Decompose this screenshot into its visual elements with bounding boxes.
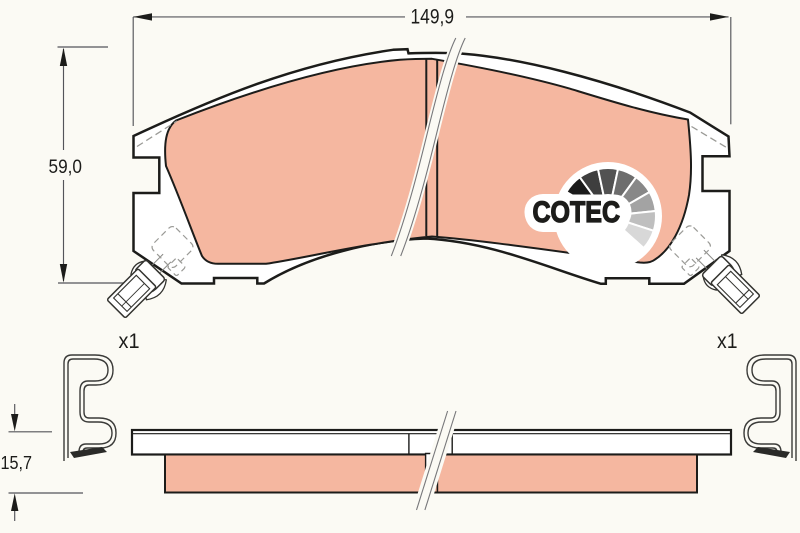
svg-text:x1: x1 <box>119 330 140 353</box>
svg-text:COTEC: COTEC <box>533 196 621 229</box>
svg-text:149,9: 149,9 <box>411 6 455 29</box>
svg-text:x1: x1 <box>717 330 738 353</box>
svg-text:59,0: 59,0 <box>49 157 83 178</box>
svg-text:15,7: 15,7 <box>1 453 33 473</box>
